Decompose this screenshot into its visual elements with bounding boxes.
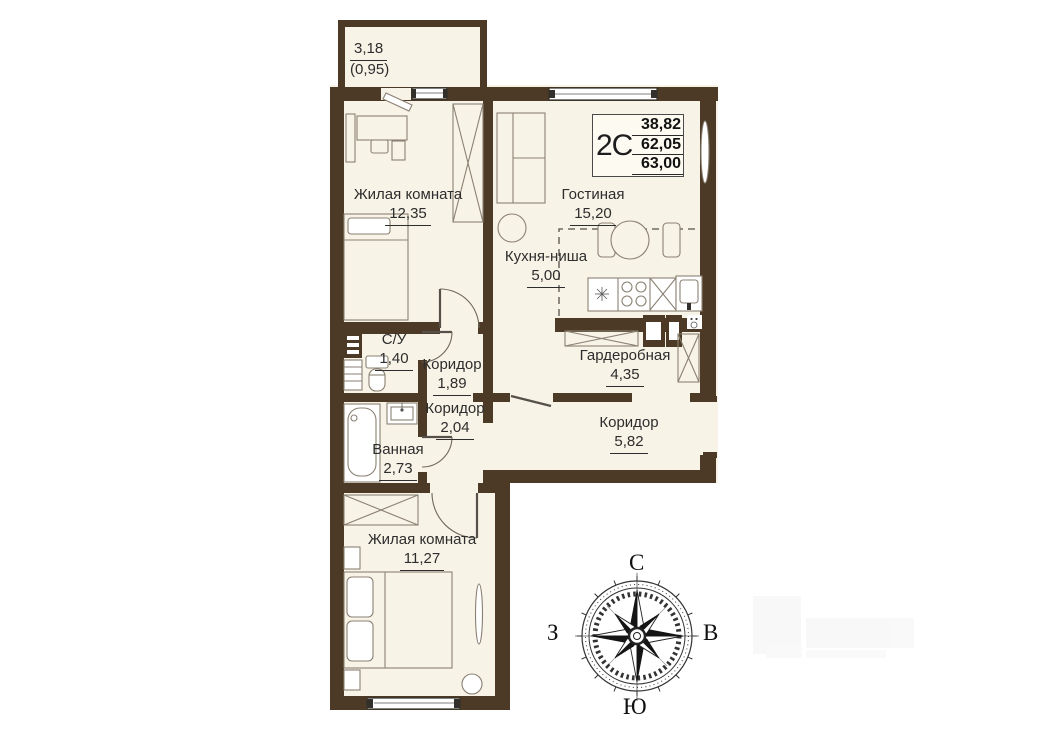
floor-plan-canvas (0, 0, 1052, 744)
room-label-living: Гостиная 15,20 (528, 186, 658, 226)
compass-rose (575, 573, 699, 701)
entry-door-jamb-bottom (703, 452, 717, 458)
room-label-corridor-3: Коридор 5,82 (584, 414, 674, 454)
room-name: Жилая комната (338, 186, 478, 205)
washing-machine (344, 360, 362, 390)
cabinet-dark (344, 332, 362, 358)
room-label-bedroom2: Жилая комната 11,27 (352, 531, 492, 571)
bathroom-sink (387, 403, 417, 424)
balcony-label: 3,18 (0,95) (350, 40, 420, 80)
compass-west-label: З (547, 620, 559, 646)
floor-plan-page: 2С 38,82 62,05 63,00 3,18 (0,95) Жилая к… (0, 0, 1052, 744)
room-name: С/У (366, 331, 422, 350)
chair (663, 223, 680, 257)
stool (462, 674, 482, 694)
kitchen-sink (676, 276, 702, 311)
apartment-info-box: 2С 38,82 62,05 63,00 (592, 114, 684, 177)
entry-door-jamb-top (703, 396, 717, 402)
room-label-corridor-2: Коридор 2,04 (422, 400, 488, 440)
apartment-areas: 38,82 62,05 63,00 (632, 116, 683, 175)
total-area-with-balcony-value: 63,00 (632, 155, 683, 175)
room-label-kitchen-niche: Кухня-ниша 5,00 (494, 248, 598, 288)
vent-icon (687, 315, 702, 329)
room-area: 11,27 (400, 550, 444, 571)
nightstand (344, 670, 360, 690)
room-area: 5,82 (610, 433, 647, 454)
room-name: Коридор (422, 400, 488, 419)
mirror (476, 584, 483, 644)
room-label-bathroom: Ванная 2,73 (366, 441, 430, 481)
compass-east-label: В (703, 620, 718, 646)
room-name: Жилая комната (352, 531, 492, 550)
sink-symbol (595, 287, 609, 301)
watermark (753, 596, 914, 658)
kitchen-counter (588, 276, 702, 311)
room-area: 1,40 (375, 350, 412, 371)
room-name: Коридор (584, 414, 674, 433)
room-name: Ванная (366, 441, 430, 460)
room-area: 15,20 (570, 205, 616, 226)
room-name: Гостиная (528, 186, 658, 205)
room-area: 5,00 (527, 267, 564, 288)
room-label-dressing: Гардеробная 4,35 (566, 347, 684, 387)
room-name: Кухня-ниша (494, 248, 598, 267)
compass-south-label: Ю (623, 694, 647, 720)
balcony-coeff: (0,95) (350, 61, 389, 78)
compass-north-label: С (629, 550, 644, 576)
room-area: 12,35 (385, 205, 431, 226)
room-area: 2,73 (379, 460, 416, 481)
total-area-value: 62,05 (632, 136, 683, 156)
room-area: 1,89 (433, 375, 470, 396)
window-bedroom2 (367, 698, 460, 709)
bed-single (344, 214, 408, 320)
room-name: Коридор (420, 356, 484, 375)
bed-double (344, 572, 452, 668)
room-label-wc: С/У 1,40 (366, 331, 422, 371)
room-name: Гардеробная (566, 347, 684, 366)
dining-table (611, 221, 649, 259)
balcony-area: 3,18 (350, 40, 387, 61)
room-label-corridor-1: Коридор 1,89 (420, 356, 484, 396)
dining-set (598, 221, 680, 259)
window-living (549, 88, 657, 100)
room-label-bedroom1: Жилая комната 12,35 (338, 186, 478, 226)
window-balcony-wall (412, 88, 447, 99)
apartment-type-label: 2С (593, 129, 632, 163)
radiator (701, 121, 709, 183)
living-area-value: 38,82 (632, 116, 683, 136)
room-area: 2,04 (436, 419, 473, 440)
room-area: 4,35 (606, 366, 643, 387)
